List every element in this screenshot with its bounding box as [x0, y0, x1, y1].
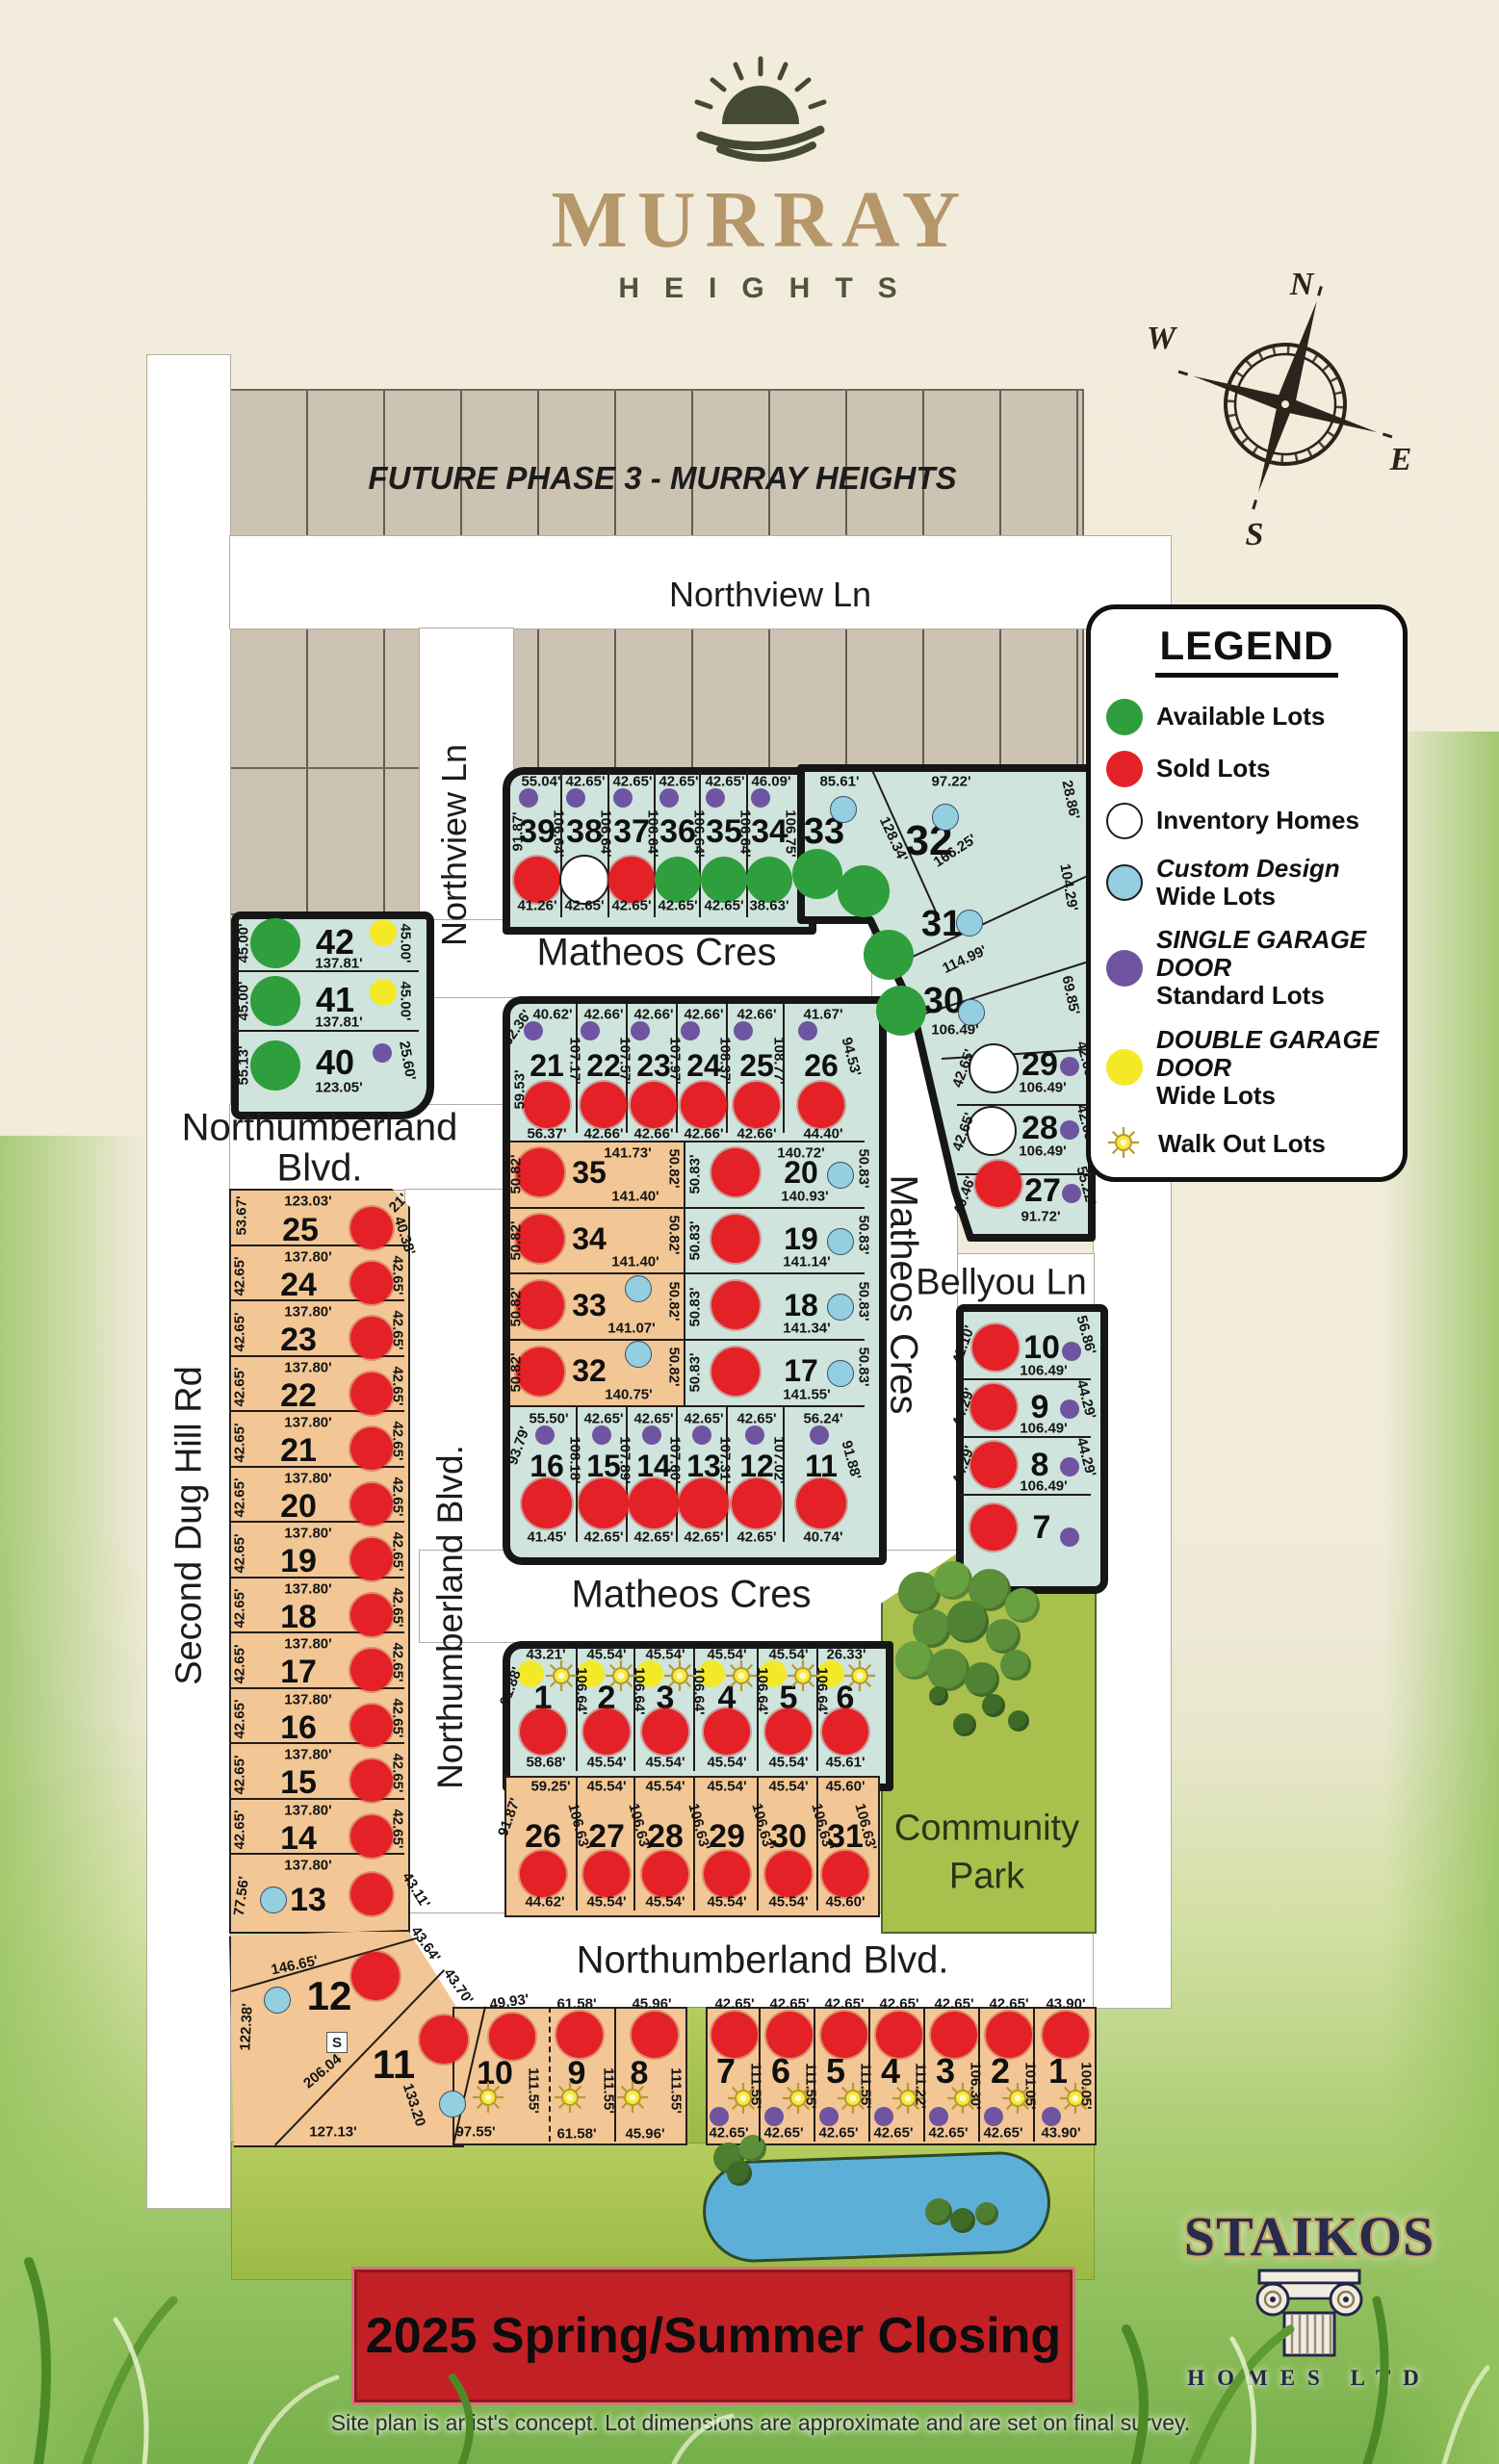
- lot-status-circle[interactable]: [489, 2014, 535, 2060]
- tree-icon: [925, 2198, 952, 2225]
- lot-status-circle[interactable]: [350, 1759, 393, 1802]
- road-label-northumberland-vertical: Northumberland Blvd.: [430, 1445, 471, 1789]
- lot-number[interactable]: 22: [586, 1050, 621, 1081]
- lot-dimension: 50.82': [667, 1148, 682, 1188]
- future-phase-block-west: [229, 767, 423, 915]
- lot-dimension: 44.40': [803, 1127, 842, 1142]
- lot-number[interactable]: 33: [572, 1290, 607, 1321]
- custom-design-dot: [827, 1228, 854, 1255]
- lot-number[interactable]: 29: [709, 1820, 745, 1853]
- lot-status-circle[interactable]: [350, 1373, 393, 1415]
- compass-north-label: N: [1290, 267, 1314, 303]
- lot-number[interactable]: 35: [572, 1157, 607, 1188]
- lot-dimension: 45.54': [707, 1895, 746, 1910]
- lot-number[interactable]: 12: [739, 1450, 774, 1481]
- lot-number[interactable]: 18: [280, 1601, 317, 1633]
- lot-status-circle[interactable]: [972, 1324, 1019, 1371]
- legend-item-label: Sold Lots: [1156, 755, 1270, 783]
- lot-dimension: 55.04': [521, 775, 560, 789]
- lot-status-circle[interactable]: [876, 986, 926, 1036]
- lot-dimension: 42.65': [737, 1412, 776, 1426]
- lot-dimension: 106.49': [1020, 1364, 1067, 1378]
- lot-status-circle[interactable]: [350, 1649, 393, 1691]
- single-garage-dot: [1060, 1527, 1079, 1547]
- lot-status-circle[interactable]: [876, 2012, 922, 2058]
- lot-number[interactable]: 16: [530, 1450, 564, 1481]
- lot-dimension: 42.66': [737, 1008, 776, 1022]
- single-garage-dot: [706, 788, 725, 808]
- single-garage-dot: [810, 1425, 829, 1445]
- lot-status-circle[interactable]: [765, 1708, 812, 1755]
- lot-number[interactable]: 14: [636, 1450, 671, 1481]
- lot-dimension: 42.65': [391, 1310, 405, 1349]
- lot-dimension: 50.82': [667, 1215, 682, 1254]
- lot-status-circle[interactable]: [250, 1040, 300, 1091]
- closing-banner: 2025 Spring/Summer Closing: [354, 2270, 1073, 2402]
- custom-design-dot: [264, 1987, 291, 2014]
- lot-number[interactable]: 34: [572, 1223, 607, 1254]
- lot-status-circle[interactable]: [520, 1851, 566, 1897]
- tree-icon: [950, 2208, 975, 2233]
- lot-number[interactable]: 20: [280, 1490, 317, 1523]
- lot-status-circle[interactable]: [250, 976, 300, 1026]
- lot-dimension: 137.80': [284, 1859, 331, 1873]
- single-garage-dot: [798, 1021, 817, 1040]
- lot-status-circle[interactable]: [704, 1851, 750, 1897]
- legend-underline: [1155, 673, 1338, 678]
- lot-dimension: 137.80': [284, 1250, 331, 1265]
- lot-number[interactable]: 28: [1021, 1112, 1058, 1144]
- lot-status-circle[interactable]: [711, 2012, 758, 2058]
- lot-dimension: 45.00': [399, 923, 413, 962]
- lot-dimension: 107.31': [718, 1436, 733, 1483]
- lot-status-circle[interactable]: [704, 1708, 750, 1755]
- tree-icon: [953, 1713, 976, 1736]
- lot-dimension: 41.67': [803, 1008, 842, 1022]
- lot-status-circle[interactable]: [746, 857, 792, 903]
- lot-dimension: 42.65': [928, 2126, 968, 2141]
- lot-status-circle[interactable]: [350, 1594, 393, 1636]
- lot-number[interactable]: 30: [770, 1820, 807, 1853]
- lot-dimension: 42.65': [391, 1531, 405, 1571]
- lot-status-circle[interactable]: [864, 930, 914, 980]
- lot-dimension: 42.65': [684, 1530, 723, 1545]
- road-label-second-dug-hill: Second Dug Hill Rd: [169, 1366, 211, 1685]
- lot-status-circle[interactable]: [579, 1478, 629, 1528]
- lot-dimension: 59.53': [513, 1069, 528, 1109]
- lot-status-circle[interactable]: [351, 1952, 400, 2000]
- lot-status-circle[interactable]: [583, 1851, 630, 1897]
- lot-number[interactable]: 29: [1021, 1048, 1058, 1081]
- walkout-icon: [553, 2080, 587, 2115]
- lot-dimension: 123.03': [284, 1194, 331, 1209]
- lot-dimension: 42.66': [583, 1127, 623, 1142]
- lot-number[interactable]: 25: [282, 1214, 319, 1246]
- lot-number[interactable]: 22: [280, 1379, 317, 1412]
- lot-status-circle[interactable]: [821, 2012, 867, 2058]
- lot-status-circle[interactable]: [642, 1851, 688, 1897]
- lot-dimension: 45.54': [645, 1780, 685, 1794]
- lot-number[interactable]: 21: [280, 1434, 317, 1467]
- lot-status-circle[interactable]: [642, 1708, 688, 1755]
- lot-dimension: 106.75': [784, 809, 798, 857]
- legend-item: Custom Design Wide Lots: [1091, 847, 1403, 918]
- lot-number[interactable]: 32: [572, 1355, 607, 1386]
- legend-item-label: DOUBLE GARAGE DOORWide Lots: [1156, 1026, 1387, 1110]
- single-garage-dot: [535, 1425, 555, 1445]
- lot-dimension: 97.55': [455, 2125, 495, 2140]
- lot-number[interactable]: 23: [636, 1050, 671, 1081]
- lot-dimension: 107.57': [618, 1037, 633, 1084]
- lot-dimension: 106.64': [646, 809, 660, 857]
- lot-dimension: 42.65': [233, 1533, 247, 1573]
- lot-dimension: 42.65': [391, 1255, 405, 1295]
- legend-item: DOUBLE GARAGE DOORWide Lots: [1091, 1018, 1403, 1117]
- lot-dimension: 42.65': [583, 1412, 623, 1426]
- lot-dimension: 42.65': [934, 1997, 973, 2012]
- single-garage-dot: [681, 1021, 700, 1040]
- lot-status-circle[interactable]: [975, 1161, 1021, 1207]
- lot-dimension: 106.64': [552, 809, 566, 857]
- lot-status-circle[interactable]: [931, 2012, 977, 2058]
- lot-number[interactable]: 41: [316, 983, 354, 1017]
- lot-dimension: 141.55': [783, 1388, 830, 1402]
- tree-icon: [727, 2161, 752, 2186]
- lot-status-circle[interactable]: [350, 1262, 393, 1304]
- lot-number[interactable]: 40: [316, 1045, 354, 1080]
- lot-dimension: 26.33': [826, 1648, 866, 1662]
- lot-number[interactable]: 12: [307, 1976, 352, 2016]
- lot-status-circle[interactable]: [629, 1478, 679, 1528]
- legend-item-label: Walk Out Lots: [1158, 1130, 1326, 1158]
- lot-dimension: 137.80': [284, 1804, 331, 1818]
- lot-status-circle[interactable]: [524, 1082, 570, 1128]
- single-garage-dot: [566, 788, 585, 808]
- walkout-icon: [842, 1658, 877, 1693]
- lot-number[interactable]: 26: [525, 1820, 561, 1853]
- tree-icon: [975, 2202, 998, 2225]
- road-label-northumberland-west-2: Blvd.: [277, 1147, 363, 1191]
- lot-dimension: 106.49': [1019, 1144, 1066, 1159]
- lot-number[interactable]: 19: [784, 1223, 818, 1254]
- lot-status-circle[interactable]: [734, 1082, 780, 1128]
- lot-status-circle[interactable]: [679, 1478, 729, 1528]
- lot-number[interactable]: 11: [805, 1450, 838, 1481]
- lot-dimension: 137.81': [315, 957, 362, 971]
- lot-dimension: 45.54': [586, 1895, 626, 1910]
- lot-status-circle[interactable]: [514, 857, 560, 903]
- tree-icon: [934, 1561, 972, 1600]
- lot-status-circle[interactable]: [1043, 2012, 1089, 2058]
- lot-status-circle[interactable]: [250, 918, 300, 968]
- lot-status-circle[interactable]: [350, 1873, 393, 1915]
- lot-status-circle[interactable]: [711, 1347, 760, 1396]
- compass-rose-icon: [1160, 258, 1410, 547]
- custom-design-dot: [625, 1275, 652, 1302]
- lot-number[interactable]: 27: [1024, 1174, 1061, 1207]
- lot-status-circle[interactable]: [350, 1483, 393, 1526]
- legend-item: Inventory Homes: [1091, 795, 1403, 847]
- road-label-northumberland-west-1: Northumberland: [182, 1107, 458, 1150]
- site-plan: 3955.04'91.87'106.64'41.26'3842.65'106.6…: [0, 0, 1499, 2464]
- lot-dimension: 137.80': [284, 1361, 331, 1375]
- lot-status-circle[interactable]: [350, 1815, 393, 1858]
- single-garage-dot: [1060, 1457, 1079, 1476]
- legend-items: Available LotsSold LotsInventory HomesCu…: [1091, 691, 1403, 1171]
- lot-dimension: 100.05': [1079, 2062, 1094, 2109]
- disclaimer-text: Site plan is artist's concept. Lot dimen…: [231, 2410, 1290, 2436]
- lot-number[interactable]: 16: [280, 1711, 317, 1744]
- lot-dimension: 42.65': [704, 899, 743, 913]
- lot-dimension: 41.45': [527, 1530, 566, 1545]
- lot-dimension: 42.65': [659, 775, 698, 789]
- lot-dimension: 45.54': [768, 1756, 808, 1770]
- lot-dimension: 45.96': [625, 2127, 664, 2142]
- legend-item-label: Inventory Homes: [1156, 807, 1359, 834]
- lot-dimension: 46.09': [751, 775, 790, 789]
- single-garage-dot: [642, 1425, 661, 1445]
- lot-dimension: 106.64': [692, 1667, 707, 1714]
- lot-number[interactable]: 17: [280, 1655, 317, 1688]
- lot-number[interactable]: 10: [1023, 1331, 1060, 1364]
- lot-dimension: 141.07': [607, 1322, 655, 1336]
- lot-status-circle[interactable]: [583, 1708, 630, 1755]
- lot-number[interactable]: 7: [1033, 1511, 1051, 1544]
- lot-dimension: 137.80': [284, 1693, 331, 1707]
- lot-dimension: 61.58': [556, 1997, 596, 2012]
- lot-status-circle[interactable]: [765, 1851, 812, 1897]
- lot-number[interactable]: 8: [1031, 1449, 1049, 1481]
- lot-dimension: 45.00': [237, 923, 251, 962]
- lot-number[interactable]: 15: [280, 1766, 317, 1799]
- lot-dimension: 42.65': [769, 1997, 809, 2012]
- lot-status-circle[interactable]: [970, 1504, 1017, 1551]
- lot-dimension: 107.17': [568, 1037, 582, 1084]
- lot-status-circle[interactable]: [838, 865, 890, 917]
- lot-dimension: 38.63': [749, 899, 788, 913]
- lot-status-circle[interactable]: [581, 1082, 627, 1128]
- lot-dimension: 137.80': [284, 1748, 331, 1762]
- lot-status-circle[interactable]: [732, 1478, 782, 1528]
- lot-dimension: 42.65': [612, 775, 652, 789]
- legend-item-label: Available Lots: [1156, 703, 1325, 731]
- lot-number[interactable]: 19: [280, 1545, 317, 1578]
- lot-dimension: 55.13': [237, 1045, 251, 1085]
- lot-status-circle[interactable]: [350, 1427, 393, 1470]
- lot-dimension: 42.65': [879, 1997, 918, 2012]
- lot-dimension: 42.65': [658, 899, 697, 913]
- logo-subtitle: HEIGHTS: [462, 272, 1059, 305]
- lot-number[interactable]: 17: [784, 1355, 818, 1386]
- tree-icon: [1008, 1710, 1029, 1732]
- lot-number[interactable]: 13: [290, 1884, 326, 1916]
- custom-design-dot: [827, 1360, 854, 1387]
- walkout-icon: [471, 2080, 505, 2115]
- lot-dimension: 42.65': [391, 1642, 405, 1681]
- tree-icon: [929, 1686, 948, 1706]
- lot-dimension: 44.62': [525, 1895, 564, 1910]
- lot-dimension: 108.37': [718, 1037, 733, 1084]
- lot-dimension: 140.93': [781, 1190, 828, 1204]
- tree-icon: [1005, 1588, 1040, 1623]
- lot-dimension: 42.65': [233, 1644, 247, 1683]
- lot-dimension: 53.67': [235, 1195, 249, 1235]
- lot-status-circle[interactable]: [350, 1317, 393, 1359]
- lot-dimension: 45.54': [707, 1648, 746, 1662]
- lot-dimension: 42.66': [633, 1127, 673, 1142]
- lot-number[interactable]: 27: [588, 1820, 625, 1853]
- lot-dimension: 50.83': [688, 1352, 703, 1392]
- lot-dimension: 50.83': [857, 1281, 871, 1321]
- lot-dimension: 111.55': [669, 2067, 684, 2114]
- lot-number[interactable]: 25: [739, 1050, 774, 1081]
- lot-dimension: 45.60': [825, 1780, 865, 1794]
- lot-status-circle[interactable]: [655, 857, 701, 903]
- lot-dimension: 55.50': [529, 1412, 568, 1426]
- single-garage-dot: [751, 788, 770, 808]
- walkout-icon: [615, 2080, 650, 2115]
- lot-status-circle[interactable]: [798, 1082, 844, 1128]
- community-park-label-1: Community: [894, 1809, 1079, 1850]
- lot-dimension: 137.80': [284, 1305, 331, 1320]
- lot-dimension: 42.65': [824, 1997, 864, 2012]
- lot-status-circle[interactable]: [350, 1705, 393, 1747]
- lot-status-circle[interactable]: [822, 1851, 868, 1897]
- lot-status-circle[interactable]: [986, 2012, 1032, 2058]
- lot-status-circle[interactable]: [766, 2012, 813, 2058]
- lot-status-circle[interactable]: [681, 1082, 727, 1128]
- lot-dimension: 42.65': [233, 1256, 247, 1296]
- double-garage-dot: [370, 919, 397, 946]
- lot-dimension: 45.54': [645, 1895, 685, 1910]
- tree-icon: [982, 1694, 1005, 1717]
- lot-dimension: 107.02': [772, 1436, 787, 1483]
- single-garage-dot: [659, 788, 679, 808]
- single-garage-dot: [745, 1425, 764, 1445]
- lot-dimension: 106.49': [1019, 1081, 1066, 1095]
- lot-dimension: 42.65': [233, 1367, 247, 1406]
- lot-status-circle[interactable]: [350, 1207, 393, 1249]
- sold-swatch-icon: [1106, 751, 1143, 787]
- lot-dimension: 43.90': [1046, 1997, 1085, 2012]
- lot-status-circle[interactable]: [711, 1281, 760, 1329]
- lot-dimension: 42.65': [709, 2126, 748, 2141]
- lot-dimension: 127.13': [309, 2125, 356, 2140]
- lot-dimension: 42.65': [989, 1997, 1028, 2012]
- lot-status-circle[interactable]: [520, 1708, 566, 1755]
- lot-dimension: 56.24': [803, 1412, 842, 1426]
- lot-dimension: 59.25': [530, 1780, 570, 1794]
- lot-dimension: 42.65': [714, 1997, 754, 2012]
- lot-number[interactable]: 20: [784, 1157, 818, 1188]
- lot-dimension: 40.62': [532, 1008, 572, 1022]
- lot-number[interactable]: 24: [686, 1050, 721, 1081]
- lot-status-circle[interactable]: [792, 849, 842, 899]
- custom-swatch-icon: [1106, 864, 1143, 901]
- lot-status-circle[interactable]: [632, 2012, 678, 2058]
- lot-dimension: 42.65': [233, 1588, 247, 1628]
- single-garage-dot: [1060, 1399, 1079, 1419]
- lot-dimension: 106.64': [815, 1667, 830, 1714]
- logo-title: MURRAY: [462, 173, 1059, 267]
- lot-dimension: 111.55': [859, 2063, 873, 2109]
- lot-dimension: 42.66': [737, 1127, 776, 1142]
- lot-dimension: 106.64': [692, 809, 707, 857]
- lot-status-circle[interactable]: [608, 857, 655, 903]
- lot-number[interactable]: 21: [530, 1050, 564, 1081]
- lot-number[interactable]: 23: [280, 1323, 317, 1356]
- lot-status-circle[interactable]: [350, 1538, 393, 1580]
- future-phase-label: FUTURE PHASE 3 - MURRAY HEIGHTS: [368, 460, 956, 497]
- lot-dimension: 108.18': [568, 1436, 582, 1483]
- lot-boundary-line: [510, 1207, 865, 1209]
- lot-dimension: 50.83': [857, 1215, 871, 1254]
- lot-dimension: 106.64': [633, 1667, 647, 1714]
- lot-dimension: 137.81': [315, 1015, 362, 1030]
- lot-dimension: 45.54': [707, 1756, 746, 1770]
- lot-dimension: 40.74': [803, 1530, 842, 1545]
- lot-dimension: 42.65': [611, 899, 651, 913]
- road-label-bellyou: Bellyou Ln: [916, 1263, 1086, 1304]
- lot-number[interactable]: 13: [686, 1450, 721, 1481]
- lot-dimension: 106.64': [756, 1667, 770, 1714]
- lot-dimension: 42.65': [391, 1366, 405, 1405]
- lot-status-circle[interactable]: [822, 1708, 868, 1755]
- lot-dimension: 56.37': [527, 1127, 566, 1142]
- lot-number[interactable]: 9: [1031, 1391, 1049, 1424]
- lot-status-circle[interactable]: [556, 2012, 603, 2058]
- legend-item-label: SINGLE GARAGE DOORStandard Lots: [1156, 926, 1387, 1010]
- lot-number[interactable]: 15: [586, 1450, 621, 1481]
- lot-status-circle[interactable]: [631, 1082, 677, 1128]
- lot-dimension: 42.65': [583, 1530, 623, 1545]
- legend: LEGEND Available LotsSold LotsInventory …: [1086, 604, 1408, 1182]
- lot-dimension: 42.65': [391, 1587, 405, 1627]
- lot-number[interactable]: 14: [280, 1822, 317, 1855]
- lot-status-circle[interactable]: [711, 1148, 760, 1196]
- lot-number[interactable]: 18: [784, 1290, 818, 1321]
- lot-status-circle[interactable]: [967, 1106, 1017, 1156]
- compass-west-label: W: [1147, 321, 1176, 357]
- lot-number[interactable]: 28: [647, 1820, 684, 1853]
- lot-dimension: 42.65': [763, 2126, 803, 2141]
- lot-dimension: 111.55': [527, 2067, 541, 2114]
- lot-status-circle[interactable]: [796, 1478, 846, 1528]
- custom-design-dot: [827, 1162, 854, 1189]
- future-phase-block-south: [229, 628, 1084, 771]
- lot-dimension: 43.90': [1041, 2126, 1080, 2141]
- lot-number[interactable]: 26: [804, 1050, 839, 1081]
- lot-dimension: 42.65': [391, 1698, 405, 1737]
- lot-status-circle[interactable]: [420, 2015, 468, 2064]
- lot-number[interactable]: 24: [280, 1269, 317, 1301]
- lot-status-circle[interactable]: [711, 1215, 760, 1263]
- lot-dimension: 106.49': [931, 1023, 978, 1038]
- lot-dimension: 141.40': [611, 1255, 659, 1270]
- lot-dimension: 45.54': [586, 1648, 626, 1662]
- custom-design-dot: [260, 1886, 287, 1913]
- lot-dimension: 42.66': [583, 1008, 623, 1022]
- lot-status-circle[interactable]: [701, 857, 747, 903]
- lot-status-circle[interactable]: [522, 1478, 572, 1528]
- lot-dimension: 42.65': [633, 1530, 673, 1545]
- road-label-northview: Northview Ln: [669, 575, 871, 615]
- single-garage-dot: [373, 1043, 392, 1063]
- column-icon: [1237, 2269, 1382, 2361]
- lot-dimension: 45.54': [707, 1780, 746, 1794]
- lot-number[interactable]: 11: [373, 2044, 415, 2085]
- lot-dimension: 42.65': [684, 1412, 723, 1426]
